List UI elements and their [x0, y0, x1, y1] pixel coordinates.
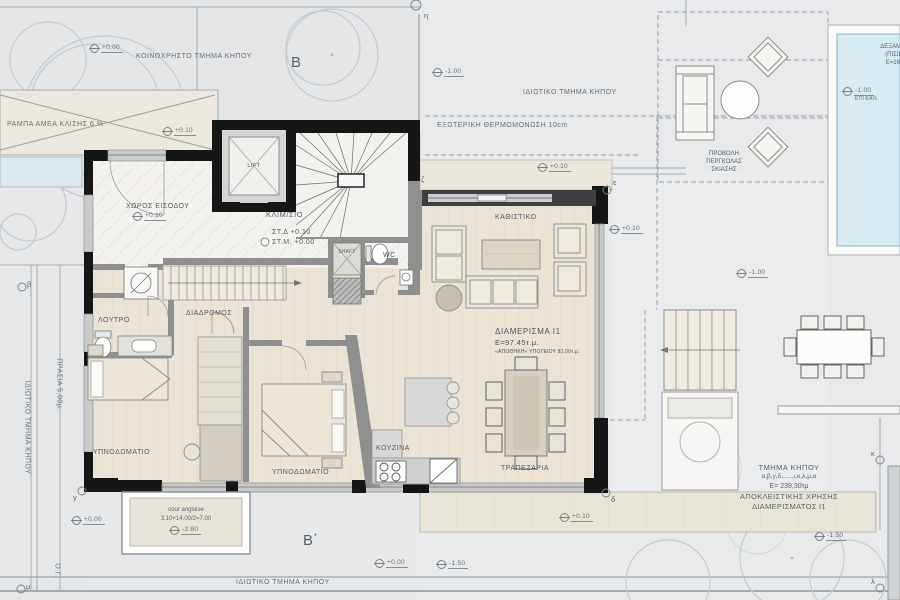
level-marker: +0.10	[163, 127, 196, 136]
level-symbol-icon	[560, 513, 569, 522]
pool-surface-label: ΕΠΙΦΑΝ.	[855, 97, 879, 102]
cour-anglaise	[122, 492, 250, 554]
level-marker: -1.00	[843, 87, 874, 96]
level-marker: +0.10	[133, 212, 166, 221]
room-stairwell-label: ΚΛΙΜ/ΣΙΟ	[266, 211, 303, 219]
level-marker: -1.00	[737, 269, 768, 278]
common-garden-label: ΚΟΙΝΟΧΡΗΣΤΟ ΤΜΗΜΑ ΚΗΠΟΥ	[136, 53, 252, 60]
stair-level-mid: ΣΤ.Μ. +0.00	[272, 239, 315, 246]
level-marker: +0.10	[560, 513, 593, 522]
level-symbol-icon	[90, 44, 99, 53]
private-garden-left-label: ΙΔΙΩΤΙΚΟ ΤΜΗΜΑ ΚΗΠΟΥ	[24, 368, 31, 488]
room-wc-label: WC	[383, 252, 396, 259]
level-symbol-icon	[170, 526, 179, 535]
room-corridor-label: ΔΙΑΔΡΟΜΟΣ	[186, 310, 232, 317]
floor-plan: ΚΟΙΝΟΧΡΗΣΤΟ ΤΜΗΜΑ ΚΗΠΟΥ ΡΑΜΠΑ ΑΜΕΑ ΚΛΙΣΗ…	[0, 0, 900, 600]
boundary-point-gamma: γ	[73, 494, 77, 502]
level-symbol-icon	[843, 87, 852, 96]
level-marker: -2.80	[170, 526, 201, 535]
room-dining-label: ΤΡΑΠΕΖΑΡΙΑ	[501, 465, 549, 472]
pool-label: ΔΕΞΑΜΕΝΗ (ΠΙΣΙΝΑ) E=16,80	[852, 44, 900, 66]
level-symbol-icon	[163, 127, 172, 136]
boundary-point-lambda: λ	[871, 578, 875, 586]
level-symbol-icon	[538, 163, 547, 172]
apartment-name: ΔΙΑΜΕΡΙΣΜΑ I1	[495, 328, 580, 336]
apartment-area: E=97.45τ.μ.	[495, 339, 580, 347]
room-bathroom-label: ΛΟΥΤΡΟ	[98, 317, 130, 324]
insulation-label: ΕΞΩΤΕΡΙΚΗ ΘΕΡΜΟΜΟΝΩΣΗ 10cm	[437, 122, 568, 129]
outdoor-round-table	[721, 81, 759, 119]
boundary-point-kappa: κ	[871, 450, 875, 458]
section-b-prime-label: B΄	[303, 533, 318, 548]
private-garden-bottom-label: ΙΔΙΩΤΙΚΟ ΤΜΗΜΑ ΚΗΠΟΥ	[236, 579, 330, 586]
level-marker: -1.50	[815, 532, 846, 541]
kitchen-island	[405, 378, 451, 426]
garden-steps	[660, 310, 740, 490]
level-marker: +0.00	[375, 559, 408, 568]
pergola-label: ΠΡΟΒΟΛΗ ΠΕΡΓΚΟΛΑΣ ΣΚΙΑΣΗΣ	[700, 151, 748, 173]
room-kitchen-label: ΚΟΥΖΙΝΑ	[376, 445, 410, 452]
boundary-point-eta: η	[424, 12, 428, 20]
level-marker: +0.10	[538, 163, 571, 172]
cour-anglaise-block: cour anglaise 3.10×14.00/2=7.00	[128, 507, 244, 522]
level-marker: -1.00	[433, 68, 464, 77]
room-entrance-label: ΧΩΡΟΣ ΕΙΣΟΔΟΥ	[126, 203, 189, 210]
outdoor-dining-table	[797, 330, 871, 364]
level-symbol-icon	[433, 68, 442, 77]
level-symbol-icon	[72, 516, 81, 525]
plot-garden-block: ΤΜΗΜΑ ΚΗΠΟΥ α,β,γ,δ,.....,ι,κ,λ,μ,α E= 2…	[730, 464, 848, 510]
level-symbol-icon	[437, 560, 446, 569]
room-living-label: ΚΑΘΙΣΤΙΚΟ	[495, 214, 537, 221]
prasia-label: ΠΡΑΣΙΑ 5,00μ.	[56, 345, 63, 425]
apartment-note: «ΑΠΟΘΗΚΗ» ΥΠΟΓΕΙΟΥ 82,00τ.μ.	[495, 350, 580, 355]
boundary-point-delta: δ	[611, 496, 615, 504]
room-bedroom2-label: ΥΠΝΟΔΩΜΑΤΙΟ	[272, 469, 329, 476]
room-lift-label: LIFT	[243, 164, 265, 170]
stair-level-top: ΣΤ.Δ +0.10	[272, 229, 311, 236]
ramp-label: ΡΑΜΠΑ ΑΜΕΑ ΚΛΙΣΗΣ 6 %	[7, 121, 103, 128]
level-marker: +0.10	[610, 225, 643, 234]
bedroom2-furniture	[262, 372, 346, 468]
building-line-label: Ο.Γ.	[54, 557, 61, 585]
private-garden-top-label: ΙΔΙΩΤΙΚΟ ΤΜΗΜΑ ΚΗΠΟΥ	[523, 89, 617, 96]
boundary-point-epsilon: ε	[613, 179, 616, 187]
level-marker: +0.00	[72, 516, 105, 525]
stair-down	[163, 266, 302, 300]
level-symbol-icon	[737, 269, 746, 278]
boundary-point-mu: μ	[26, 583, 30, 591]
room-shaft-label: SHAFT	[333, 250, 361, 255]
level-symbol-icon	[133, 212, 142, 221]
level-symbol-icon	[375, 559, 384, 568]
level-marker: -1.50	[437, 560, 468, 569]
room-bedroom1-label: ΥΠΝΟΔΩΜΑΤΙΟ	[93, 449, 150, 456]
level-symbol-icon	[815, 532, 824, 541]
level-marker: +0.00	[90, 44, 123, 53]
level-symbol-icon	[610, 225, 619, 234]
boundary-point-zeta: ζ	[421, 176, 424, 184]
boundary-point-beta: β	[27, 281, 31, 289]
side-table	[436, 285, 462, 311]
apartment-title-block: ΔΙΑΜΕΡΙΣΜΑ I1 E=97.45τ.μ. «ΑΠΟΘΗΚΗ» ΥΠΟΓ…	[495, 328, 580, 355]
section-b-label: B	[291, 55, 301, 70]
